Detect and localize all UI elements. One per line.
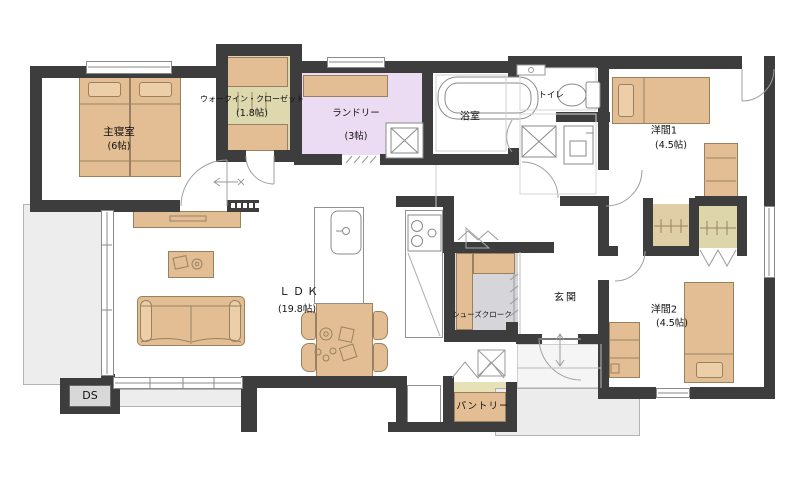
- kitchen-wall-counter: [405, 210, 443, 338]
- dining-chair: [373, 311, 388, 340]
- label-entrance: 玄関: [554, 293, 578, 304]
- wall: [444, 242, 455, 342]
- wall: [294, 154, 342, 165]
- wall: [241, 376, 257, 432]
- toilet: [558, 82, 600, 108]
- dining-chair: [301, 343, 316, 372]
- window-sliding-door: [101, 210, 114, 376]
- closet-shelf: [227, 124, 288, 151]
- desk-shelf: [704, 143, 738, 198]
- dining-chair: [373, 343, 388, 372]
- wall: [605, 56, 742, 69]
- label-ldk-size: (19.8帖): [278, 305, 316, 315]
- pillow: [139, 82, 172, 97]
- wall: [508, 56, 610, 68]
- washing-machine-pan: [522, 126, 556, 157]
- wall: [443, 196, 454, 253]
- dresser-shelf: [609, 322, 640, 378]
- label-western-room-1-size: (4.5帖): [655, 141, 687, 151]
- wall: [216, 150, 246, 162]
- wall: [764, 56, 775, 69]
- wall: [444, 242, 518, 253]
- label-bathroom: 浴室: [460, 112, 480, 123]
- label-western-room-1: 洋間1: [651, 126, 677, 137]
- coffee-table: [168, 251, 214, 278]
- dining-table: [316, 303, 373, 377]
- floor-plan-canvas: 主寝室 (6帖) ウォークイン・クローゼット (1.8帖) ランドリー (3帖)…: [0, 0, 800, 490]
- pillow: [618, 84, 634, 117]
- wall: [737, 196, 747, 256]
- wall: [508, 148, 519, 165]
- entrance-lower-floor: [517, 344, 603, 388]
- corner-cabinet: [407, 385, 441, 423]
- closet-shelf: [227, 57, 288, 87]
- wall: [764, 278, 775, 399]
- window: [764, 206, 775, 278]
- wall: [516, 242, 554, 253]
- vanity-basin: [564, 126, 593, 164]
- wall: [428, 154, 518, 165]
- wall: [690, 387, 775, 399]
- label-toilet: トイレ: [538, 91, 564, 100]
- terrace-floor: [23, 204, 105, 385]
- wall: [516, 334, 542, 344]
- wall: [764, 56, 775, 206]
- window: [113, 377, 243, 389]
- wall: [422, 61, 433, 165]
- tv-board: [133, 211, 241, 228]
- closet-2-floor: [699, 206, 737, 248]
- washroom-outline: [520, 114, 596, 194]
- window: [86, 61, 172, 74]
- wall: [241, 376, 403, 388]
- label-walk-in-closet: ウォークイン・クローゼット: [200, 96, 304, 105]
- pillow: [88, 82, 121, 97]
- wall: [598, 56, 609, 170]
- label-duct-space: DS: [82, 390, 97, 402]
- pillow: [696, 362, 723, 378]
- wall: [598, 246, 618, 256]
- label-ldk: ＬＤＫ: [279, 286, 321, 298]
- label-master-bedroom-size: (6帖): [108, 142, 131, 152]
- eave-strip: [113, 389, 243, 407]
- shoe-shelf: [473, 253, 515, 274]
- bathtub: [438, 77, 538, 119]
- label-laundry-size: (3帖): [345, 132, 368, 142]
- refrigerator-mark: [478, 350, 505, 376]
- dining-chair: [301, 311, 316, 340]
- label-western-room-2-size: (4.5帖): [656, 319, 688, 329]
- toilet-room-outline: [520, 68, 596, 110]
- label-pantry: パントリー: [457, 402, 510, 412]
- wall: [227, 200, 259, 212]
- wall: [560, 196, 609, 206]
- window: [327, 57, 385, 68]
- wall: [443, 422, 517, 432]
- label-shoes-closet: シューズクローク: [452, 311, 512, 319]
- closet-1-floor: [653, 204, 689, 246]
- sofa-armrest: [229, 300, 241, 342]
- wall: [598, 387, 656, 399]
- window: [656, 388, 690, 398]
- label-western-room-2: 洋間2: [651, 305, 677, 316]
- label-walk-in-closet-size: (1.8帖): [236, 109, 268, 119]
- laundry-shelf: [303, 75, 388, 97]
- wall: [643, 246, 699, 256]
- wall: [578, 334, 609, 344]
- label-master-bedroom: 主寝室: [103, 127, 135, 139]
- kitchen-island-counter: [314, 207, 364, 304]
- wall: [30, 66, 42, 212]
- label-laundry: ランドリー: [332, 109, 380, 119]
- sofa-armrest: [140, 300, 152, 342]
- wall: [444, 330, 506, 342]
